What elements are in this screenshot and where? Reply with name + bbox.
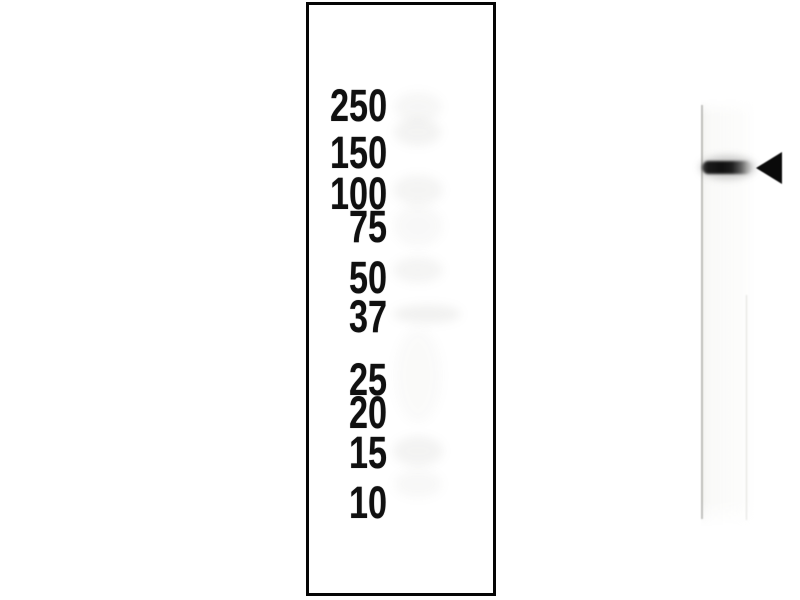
lane-right-edge-line — [746, 295, 747, 520]
faint-background-band — [394, 470, 442, 498]
mw-marker-75: 75 — [349, 205, 387, 249]
mw-marker-37: 37 — [349, 295, 387, 339]
band-pointer-arrowhead-icon — [756, 152, 782, 184]
faint-background-band — [394, 328, 442, 423]
protein-band — [702, 161, 752, 174]
faint-background-band — [393, 305, 461, 323]
faint-background-band — [393, 257, 443, 283]
mw-marker-15: 15 — [349, 431, 387, 475]
mw-marker-250: 250 — [330, 84, 387, 128]
faint-background-band — [393, 205, 443, 247]
faint-background-band — [393, 175, 443, 205]
mw-marker-10: 10 — [349, 481, 387, 525]
faint-background-band — [393, 436, 443, 466]
faint-background-band — [394, 118, 441, 146]
figure-canvas: 25015010075503725201510 — [0, 0, 800, 600]
